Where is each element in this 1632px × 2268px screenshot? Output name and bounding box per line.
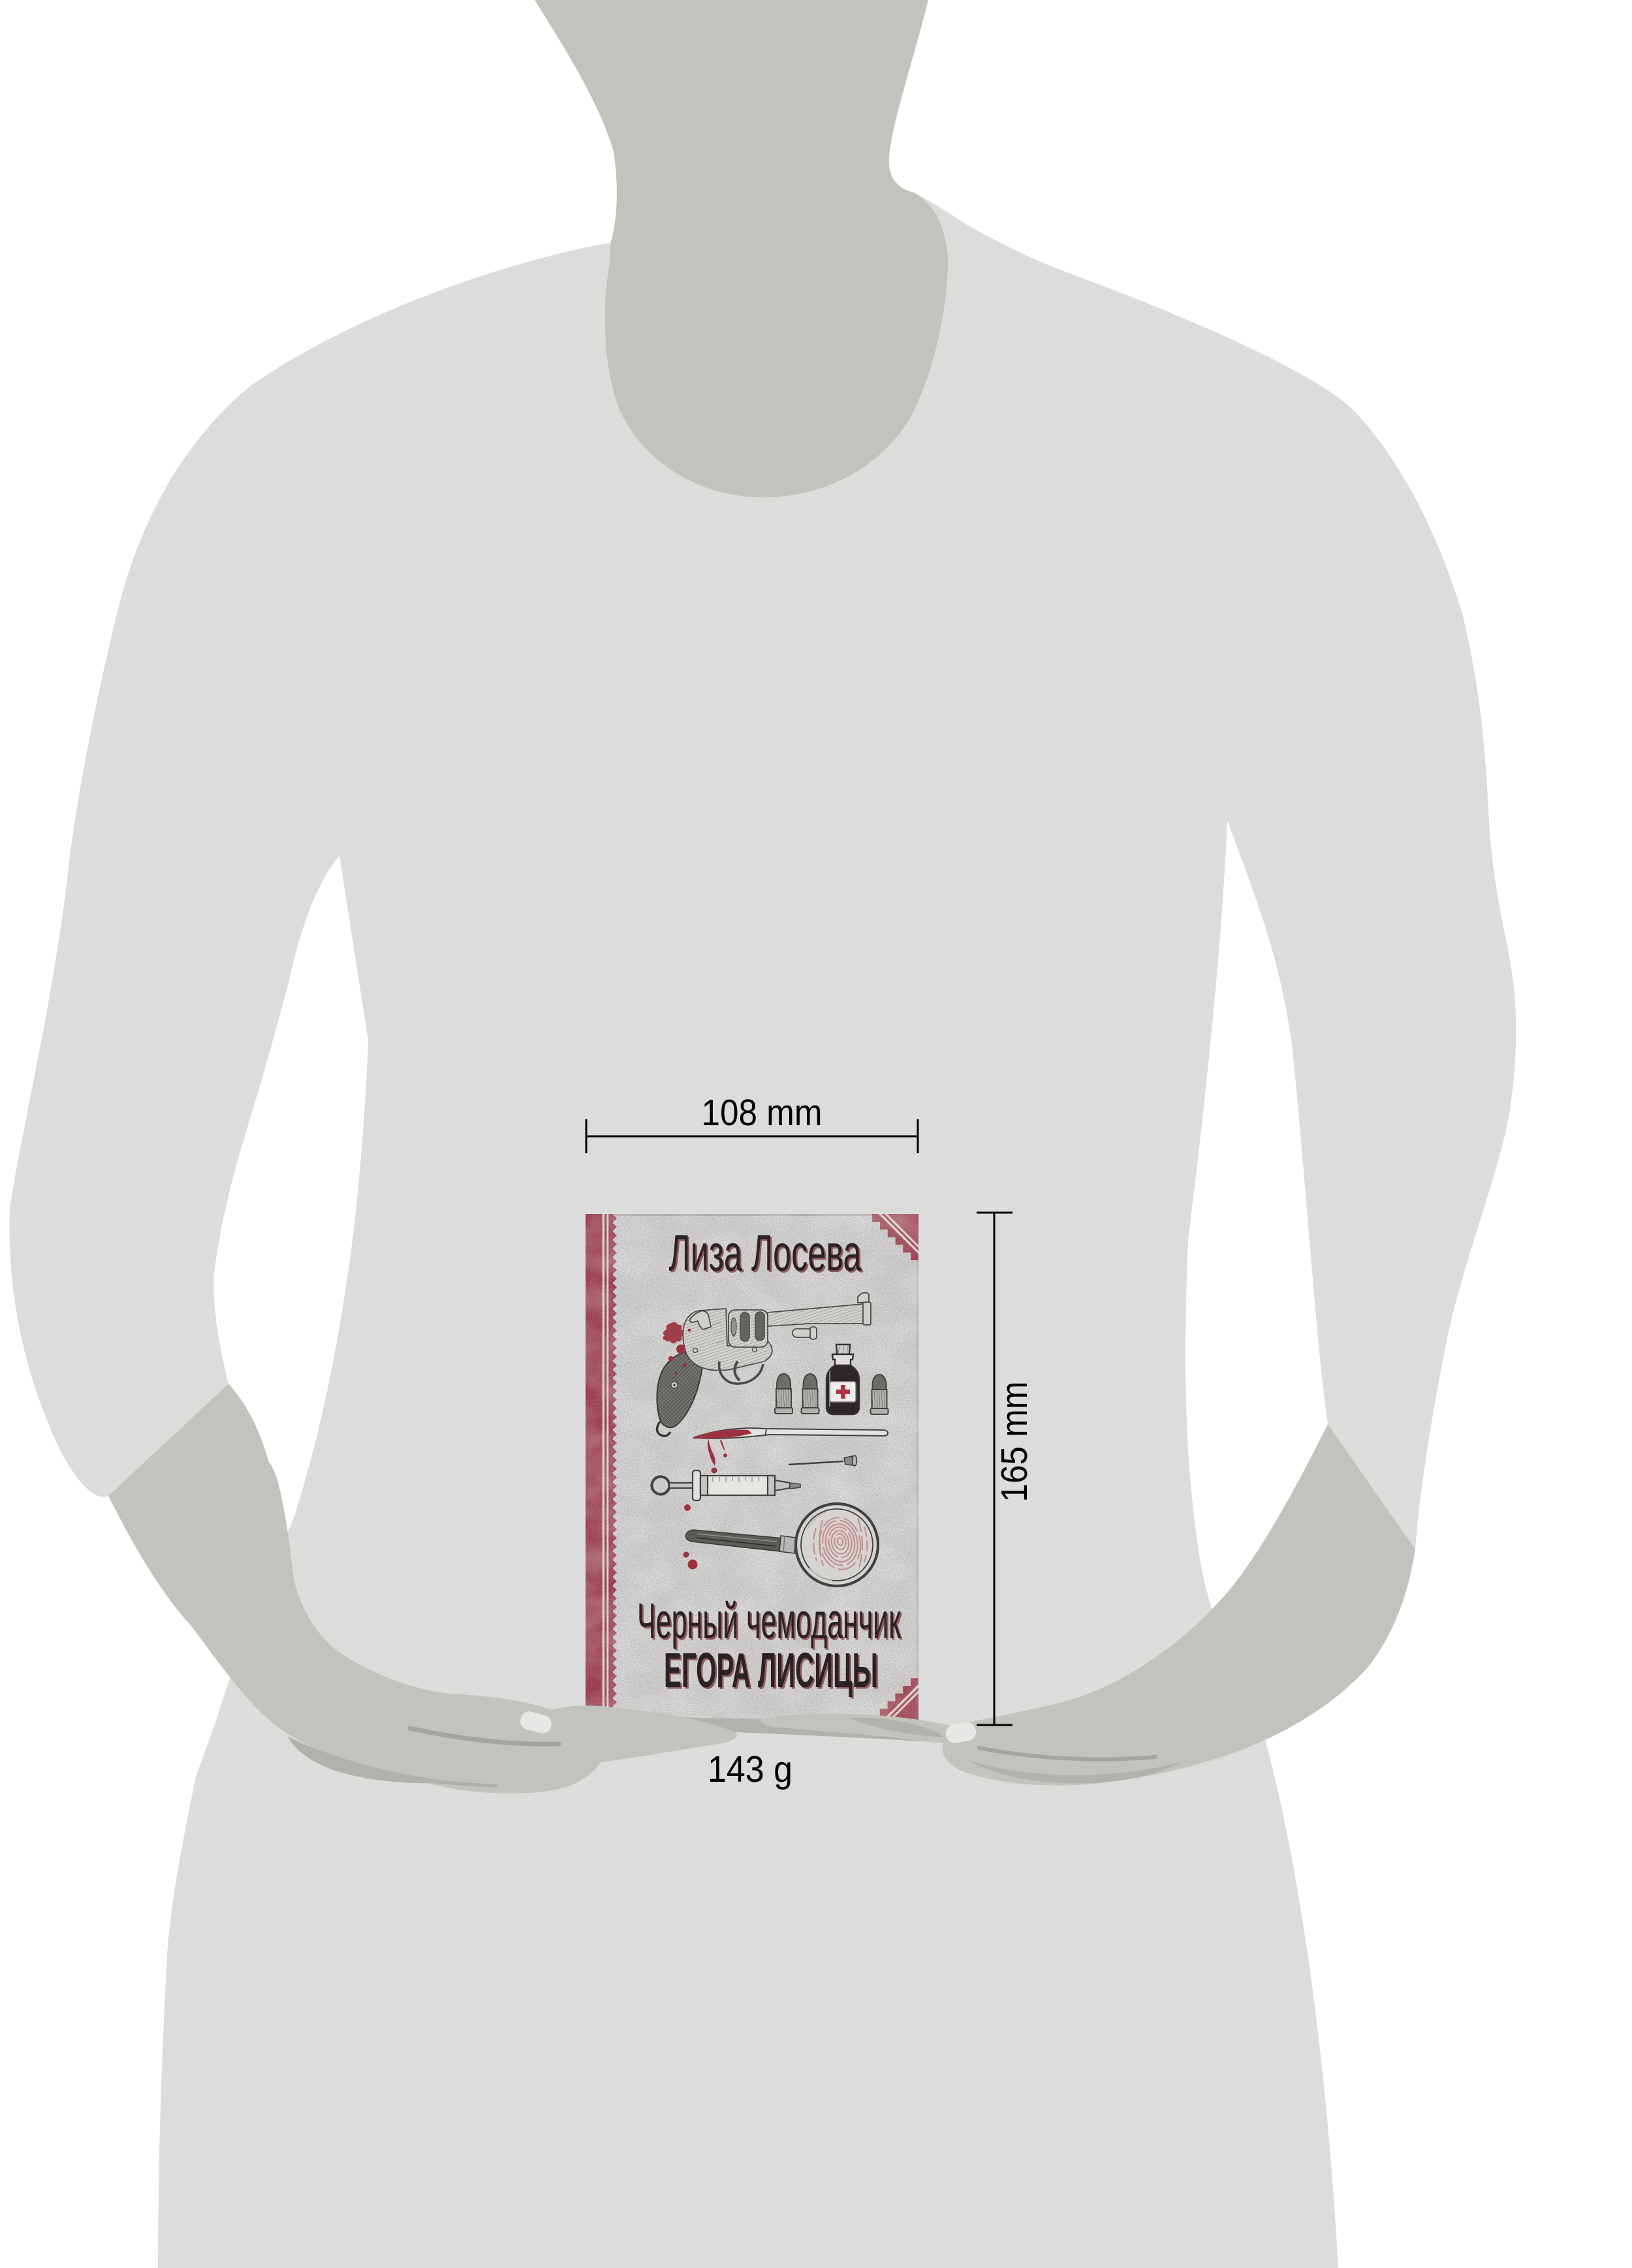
svg-text:143 g: 143 g (708, 1748, 792, 1790)
svg-text:165 mm: 165 mm (994, 1382, 1035, 1502)
svg-text:108 mm: 108 mm (702, 1092, 823, 1134)
